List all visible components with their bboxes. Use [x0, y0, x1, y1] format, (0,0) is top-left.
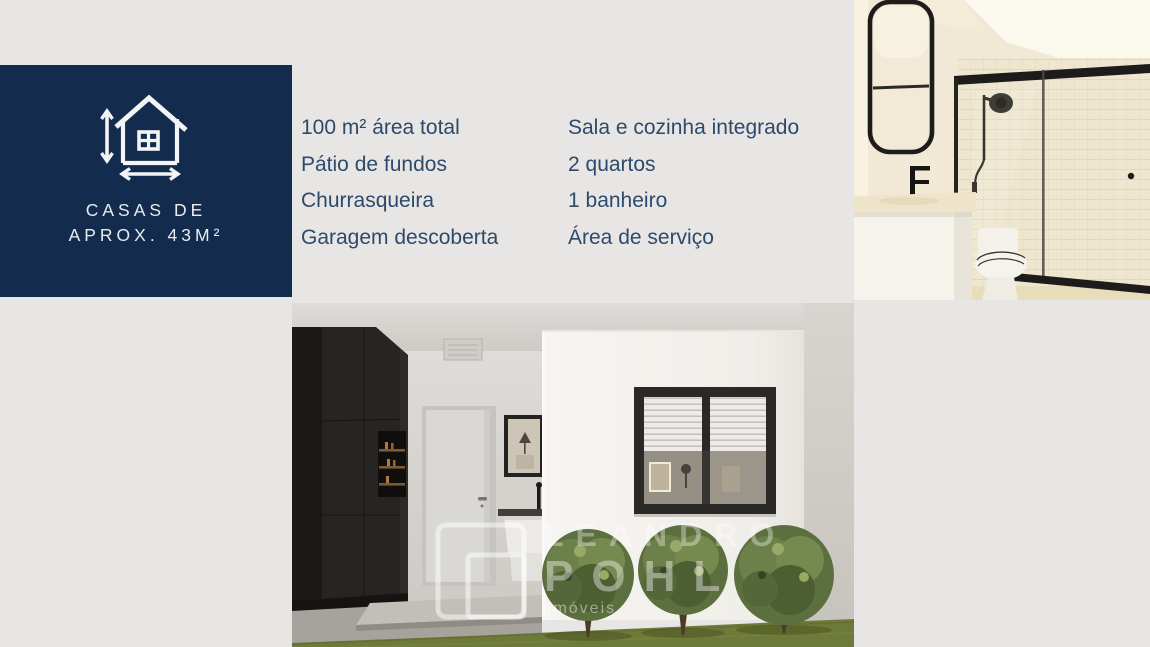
shower-door-handle — [1128, 173, 1134, 179]
badge-text: CASAS DE APROX. 43M² — [0, 198, 292, 248]
feature-item: Sala e cozinha integrado — [568, 110, 799, 147]
wall-mirror — [504, 415, 544, 477]
window — [634, 387, 776, 517]
house-measurements-icon — [96, 88, 196, 188]
feature-item: Churrasqueira — [301, 183, 498, 220]
watermark-line-3: Imóveis — [547, 600, 616, 617]
area-badge: CASAS DE APROX. 43M² — [0, 65, 292, 297]
features-column-right: Sala e cozinha integrado 2 quartos 1 ban… — [568, 110, 799, 256]
features-column-left: 100 m² área total Pátio de fundos Churra… — [301, 110, 498, 256]
window-blinds — [644, 397, 702, 451]
watermark-line-2: POHL — [544, 552, 738, 601]
door — [422, 406, 496, 586]
house-photo: LEANDRO POHL Imóveis — [292, 303, 854, 647]
badge-line-2: APROX. 43M² — [0, 223, 292, 248]
ceiling-vent-icon — [444, 339, 482, 360]
feature-item: 100 m² área total — [301, 110, 498, 147]
feature-item: Pátio de fundos — [301, 147, 498, 184]
badge-line-1: CASAS DE — [0, 198, 292, 223]
feature-item: Garagem descoberta — [301, 220, 498, 257]
shelf-niche — [378, 431, 406, 497]
feature-item: Área de serviço — [568, 220, 799, 257]
bathroom-photo — [854, 0, 1150, 300]
flyer-canvas: CASAS DE APROX. 43M² 100 m² área total P… — [0, 0, 1150, 647]
charcoal-wall — [292, 327, 408, 615]
door-handle — [478, 497, 487, 501]
watermark-line-1: LEANDRO — [544, 517, 786, 553]
bathroom-mirror — [870, 2, 932, 152]
feature-item: 1 banheiro — [568, 183, 799, 220]
feature-item: 2 quartos — [568, 147, 799, 184]
